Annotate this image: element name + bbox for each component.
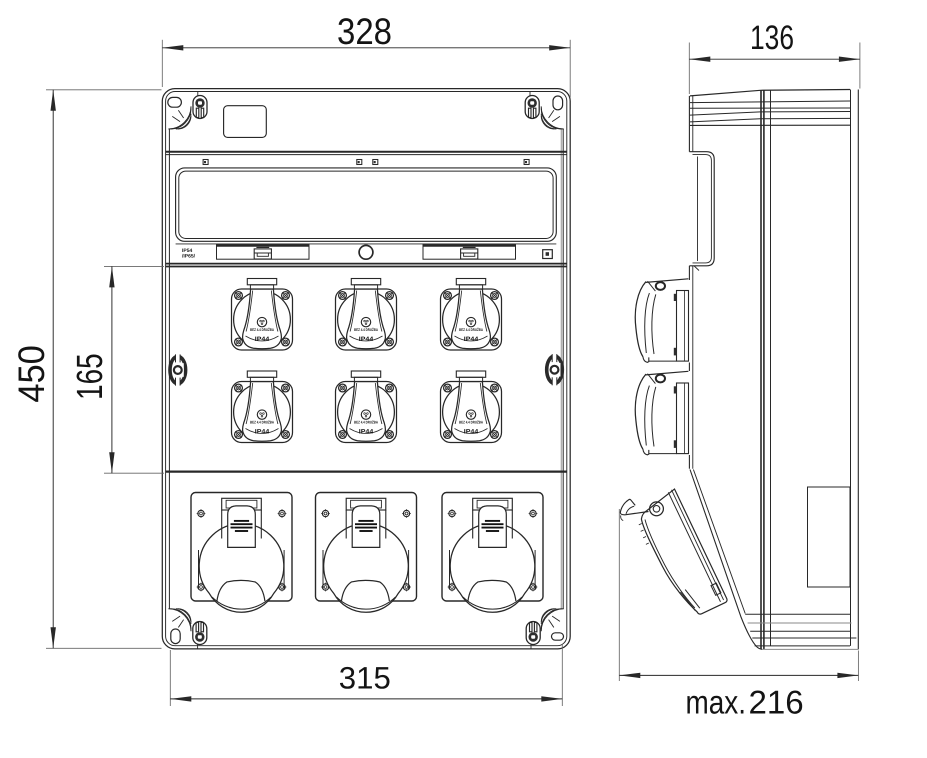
svg-text:BEZ 4.4 DRUŽBA: BEZ 4.4 DRUŽBA — [250, 327, 274, 332]
svg-text:BEZ 4.4 DRUŽBA: BEZ 4.4 DRUŽBA — [354, 327, 378, 332]
svg-text:IP44: IP44 — [464, 429, 479, 436]
svg-text:216: 216 — [749, 684, 804, 721]
svg-text:450: 450 — [11, 345, 52, 403]
svg-text:315: 315 — [339, 660, 391, 695]
svg-text:BEZ 4.4 DRUŽBA: BEZ 4.4 DRUŽBA — [250, 420, 274, 425]
svg-text:IP44: IP44 — [464, 336, 479, 343]
svg-text:328: 328 — [337, 11, 392, 52]
svg-text:BEZ 4.4 DRUŽBA: BEZ 4.4 DRUŽBA — [459, 327, 483, 332]
svg-text:/IP65/: /IP65/ — [182, 254, 196, 260]
svg-text:IP44: IP44 — [255, 429, 270, 436]
svg-text:IP44: IP44 — [359, 429, 374, 436]
svg-text:max.: max. — [686, 684, 747, 721]
svg-text:BEZ 4.4 DRUŽBA: BEZ 4.4 DRUŽBA — [354, 420, 378, 425]
svg-text:BEZ 4.4 DRUŽBA: BEZ 4.4 DRUŽBA — [459, 420, 483, 425]
svg-text:IP44: IP44 — [359, 336, 374, 343]
svg-text:165: 165 — [69, 353, 110, 400]
svg-text:IP44: IP44 — [255, 336, 270, 343]
svg-text:136: 136 — [750, 19, 794, 57]
